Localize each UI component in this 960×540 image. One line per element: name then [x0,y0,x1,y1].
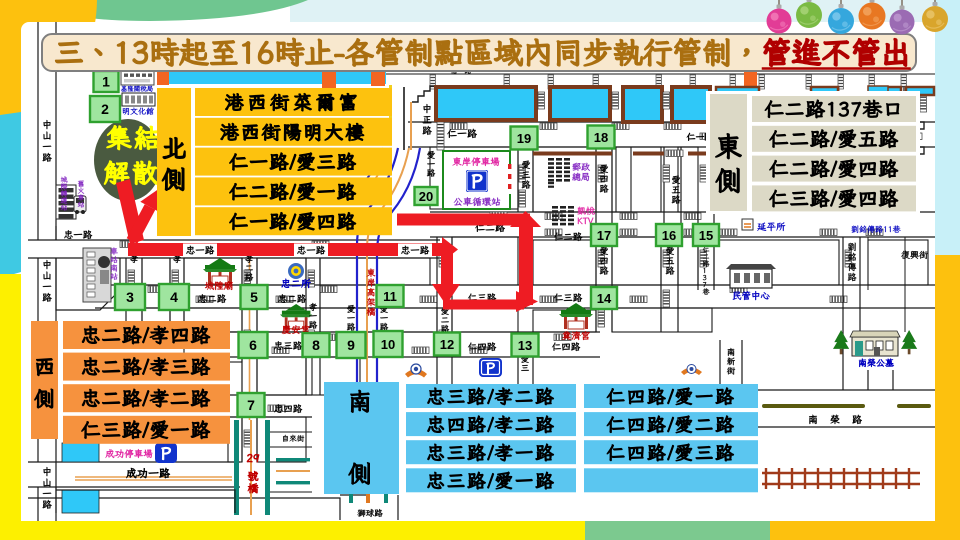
svg-text:18: 18 [594,130,608,145]
svg-text:16: 16 [662,228,676,243]
svg-text:13: 13 [518,338,532,353]
svg-text:2: 2 [101,101,109,117]
svg-text:9: 9 [347,337,355,353]
svg-text:7: 7 [247,397,255,413]
svg-text:11: 11 [383,289,397,304]
svg-text:14: 14 [597,291,612,306]
svg-text:12: 12 [440,337,454,352]
svg-text:17: 17 [597,228,611,243]
svg-text:8: 8 [312,337,320,353]
svg-text:10: 10 [381,337,395,352]
svg-text:4: 4 [170,289,178,305]
svg-text:1: 1 [102,74,110,90]
svg-text:20: 20 [419,189,433,204]
svg-text:5: 5 [250,289,258,305]
svg-text:6: 6 [249,337,257,353]
svg-text:19: 19 [517,131,531,146]
svg-text:15: 15 [699,228,713,243]
svg-text:3: 3 [126,289,134,305]
